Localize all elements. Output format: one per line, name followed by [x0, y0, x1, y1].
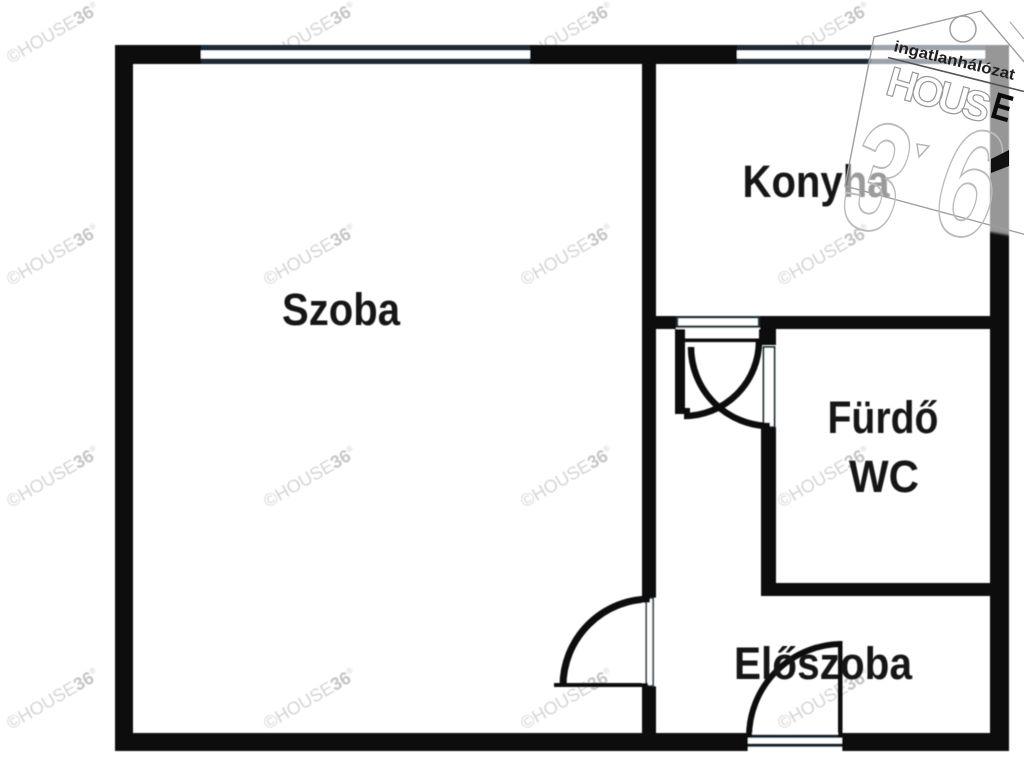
svg-text:Fürdő: Fürdő [828, 392, 939, 443]
svg-text:Előszoba: Előszoba [734, 638, 913, 689]
svg-text:Szoba: Szoba [282, 284, 401, 335]
svg-text:WC: WC [849, 451, 919, 502]
